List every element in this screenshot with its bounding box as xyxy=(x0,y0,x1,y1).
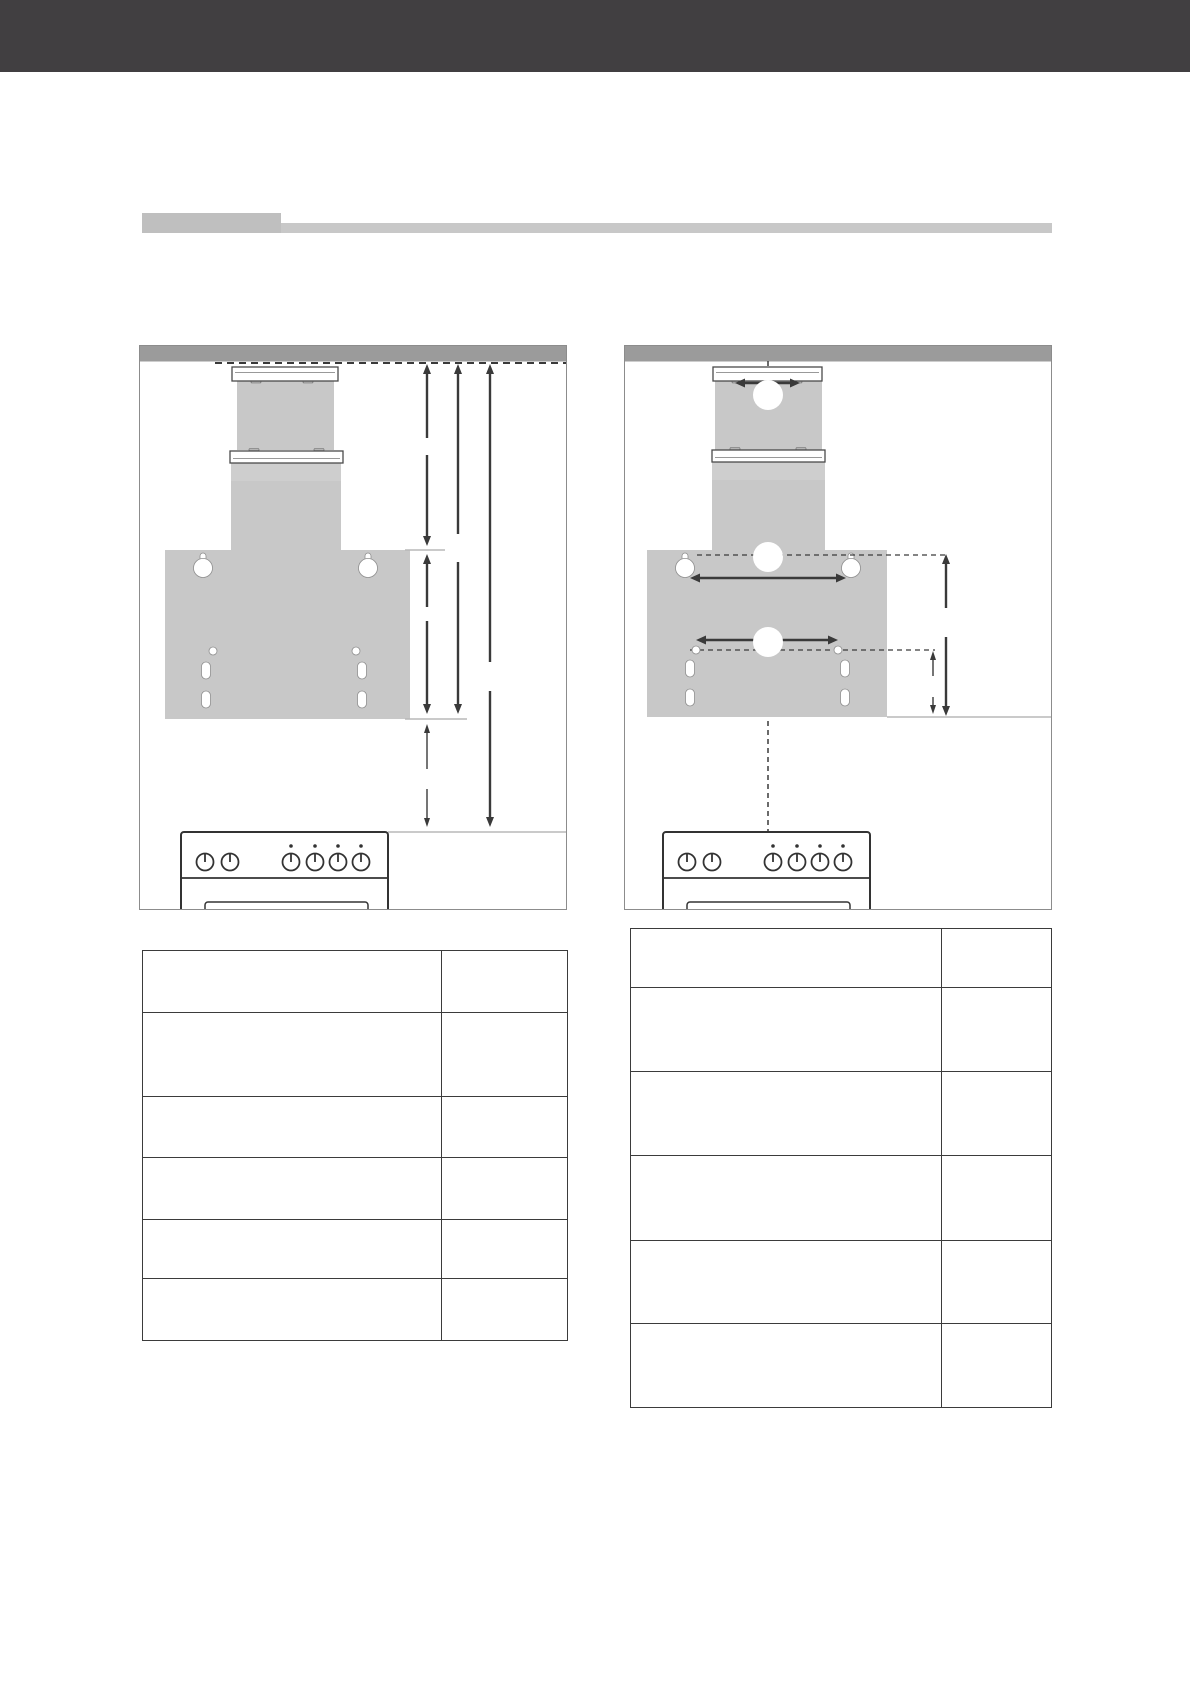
table-cell xyxy=(143,1013,442,1097)
dimension-arrow-hood-to-cooker xyxy=(424,724,430,827)
table-cell xyxy=(143,1279,442,1340)
table-cell xyxy=(942,1072,1051,1155)
table-row xyxy=(631,929,1051,987)
dimension-arrow-screw-to-bottom xyxy=(930,651,936,714)
table-cell xyxy=(631,1072,942,1155)
diagram-mounting-positions xyxy=(624,345,1052,910)
table-cell xyxy=(942,1241,1051,1324)
table-row xyxy=(631,987,1051,1072)
table-row xyxy=(143,1012,567,1097)
table-row xyxy=(143,1157,567,1219)
table-row xyxy=(143,1096,567,1157)
table-cell xyxy=(143,1158,442,1219)
section-heading-block xyxy=(142,213,281,233)
table-row xyxy=(143,1219,567,1279)
wall-bracket-upper xyxy=(232,367,338,383)
diagram-hood-clearances xyxy=(139,345,567,910)
dimension-arrow-ceiling-to-hood-bottom xyxy=(454,364,462,714)
table-cell xyxy=(442,951,567,1012)
wall-bracket-lower xyxy=(230,449,343,464)
table-row xyxy=(631,1323,1051,1407)
top-banner xyxy=(0,0,1190,72)
table-cell xyxy=(631,1156,942,1240)
mounting-positions-drawing xyxy=(624,345,1052,910)
dimension-arrow-keyhole-to-bottom xyxy=(942,554,950,716)
callout-circle-3 xyxy=(753,627,783,657)
table-cell xyxy=(942,929,1051,987)
table-cell xyxy=(631,1324,942,1407)
table-row xyxy=(631,1240,1051,1324)
table-cell xyxy=(442,1097,567,1157)
table-cell xyxy=(942,1156,1051,1240)
dimension-arrow-ceiling-to-cooker xyxy=(486,364,494,827)
cooker xyxy=(181,832,388,910)
callout-circle-1 xyxy=(753,380,783,410)
callout-circle-2 xyxy=(753,542,783,572)
table-cell xyxy=(942,988,1051,1072)
table-cell xyxy=(442,1013,567,1097)
chimney-upper-section xyxy=(237,381,334,450)
table-cell xyxy=(631,988,942,1072)
tick-lines xyxy=(388,550,566,832)
table-cell xyxy=(631,1241,942,1324)
table-cell xyxy=(631,929,942,987)
table-cell xyxy=(942,1324,1051,1407)
chimney-overlap xyxy=(712,462,825,480)
dimension-table-right xyxy=(630,928,1052,1408)
table-cell xyxy=(143,1220,442,1279)
ceiling-band xyxy=(140,346,566,362)
hood-clearance-drawing xyxy=(139,345,567,910)
table-row xyxy=(143,1278,567,1340)
table-row xyxy=(143,951,567,1012)
manual-page xyxy=(0,0,1190,1684)
oven-door-handle xyxy=(205,902,368,910)
table-cell xyxy=(442,1220,567,1279)
table-row xyxy=(631,1155,1051,1240)
table-cell xyxy=(442,1158,567,1219)
section-heading-rule xyxy=(281,223,1052,233)
table-cell xyxy=(442,1279,567,1340)
oven-door-handle xyxy=(687,902,850,910)
table-row xyxy=(631,1071,1051,1155)
cooker xyxy=(663,832,870,910)
table-cell xyxy=(143,1097,442,1157)
ceiling-band xyxy=(625,346,1051,362)
dimension-arrow-ceiling-to-hood xyxy=(423,364,431,714)
wall-bracket-lower xyxy=(712,448,825,463)
chimney-overlap xyxy=(231,463,341,481)
table-cell xyxy=(143,951,442,1012)
dimension-table-left xyxy=(142,950,568,1341)
